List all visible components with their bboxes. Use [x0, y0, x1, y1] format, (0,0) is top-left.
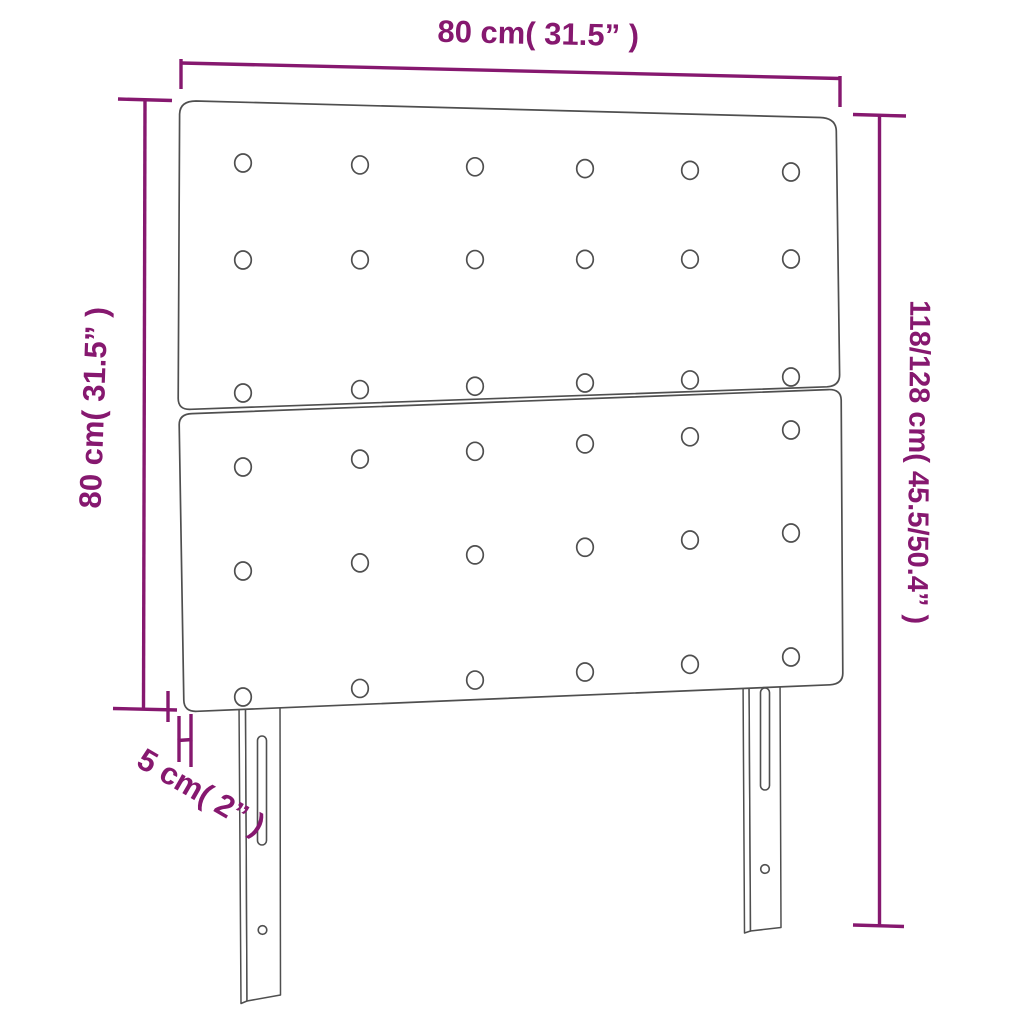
end-tick — [853, 925, 904, 927]
tufting-button — [682, 371, 699, 389]
panel-height-label: 80 cm( 31.5” ) — [72, 306, 114, 509]
dimension-line — [144, 100, 146, 709]
tufting-button — [682, 161, 699, 179]
tufting-button — [577, 160, 594, 178]
tufting-button — [783, 648, 800, 666]
right-leg-front-face — [749, 671, 781, 931]
tufting-button — [467, 158, 484, 176]
tufting-button — [577, 250, 594, 268]
tufting-button — [577, 435, 594, 453]
tufting-button — [235, 688, 252, 706]
tufting-button — [352, 450, 369, 468]
lower-panel — [179, 390, 843, 712]
total-height-label: 118/128 cm( 45.5/50.4” ) — [901, 300, 936, 624]
tufting-button — [783, 250, 800, 268]
tufting-button — [352, 251, 369, 269]
tufting-button — [235, 384, 252, 402]
width-label: 80 cm( 31.5” ) — [437, 14, 639, 54]
tufting-button — [682, 250, 699, 268]
tufting-button — [682, 655, 699, 673]
tufting-button — [783, 421, 800, 439]
tufting-button — [783, 524, 800, 542]
tufting-button — [783, 163, 800, 181]
right-total-height-dimension: 118/128 cm( 45.5/50.4” ) — [853, 115, 935, 927]
tufting-button — [577, 374, 594, 392]
left-leg-front-face — [246, 699, 281, 1001]
tufting-button — [467, 442, 484, 460]
tufting-button — [467, 546, 484, 564]
tufting-button — [577, 538, 594, 556]
tufting-button — [352, 156, 369, 174]
tufting-button — [235, 154, 252, 172]
tufting-button — [577, 663, 594, 681]
tufting-button — [682, 428, 699, 446]
left-leg — [239, 699, 281, 1004]
headboard-dimension-diagram: 80 cm( 31.5” ) 80 cm( 31.5” ) 118/128 cm… — [0, 0, 1024, 1024]
upper-panel — [178, 101, 839, 409]
tufting-button — [235, 458, 252, 476]
diagram-canvas: 80 cm( 31.5” ) 80 cm( 31.5” ) 118/128 cm… — [0, 0, 1024, 1024]
top-width-dimension: 80 cm( 31.5” ) — [181, 14, 840, 107]
end-tick — [853, 115, 906, 117]
end-tick — [118, 99, 172, 101]
tufting-button — [783, 368, 800, 386]
tufting-button — [682, 531, 699, 549]
dimension-line — [181, 63, 840, 79]
tufting-button — [467, 377, 484, 395]
tufting-button — [352, 554, 369, 572]
tufting-button — [467, 251, 484, 269]
right-leg — [743, 671, 781, 933]
tufting-button — [352, 679, 369, 697]
tufting-button — [467, 671, 484, 689]
legs — [239, 671, 781, 1004]
dimension-line — [178, 740, 193, 741]
headboard-panels — [178, 101, 843, 711]
left-panel-height-dimension: 80 cm( 31.5” ) — [72, 99, 177, 710]
tufting-button — [235, 251, 252, 269]
tufting-button — [352, 381, 369, 399]
tufting-button — [235, 562, 252, 580]
